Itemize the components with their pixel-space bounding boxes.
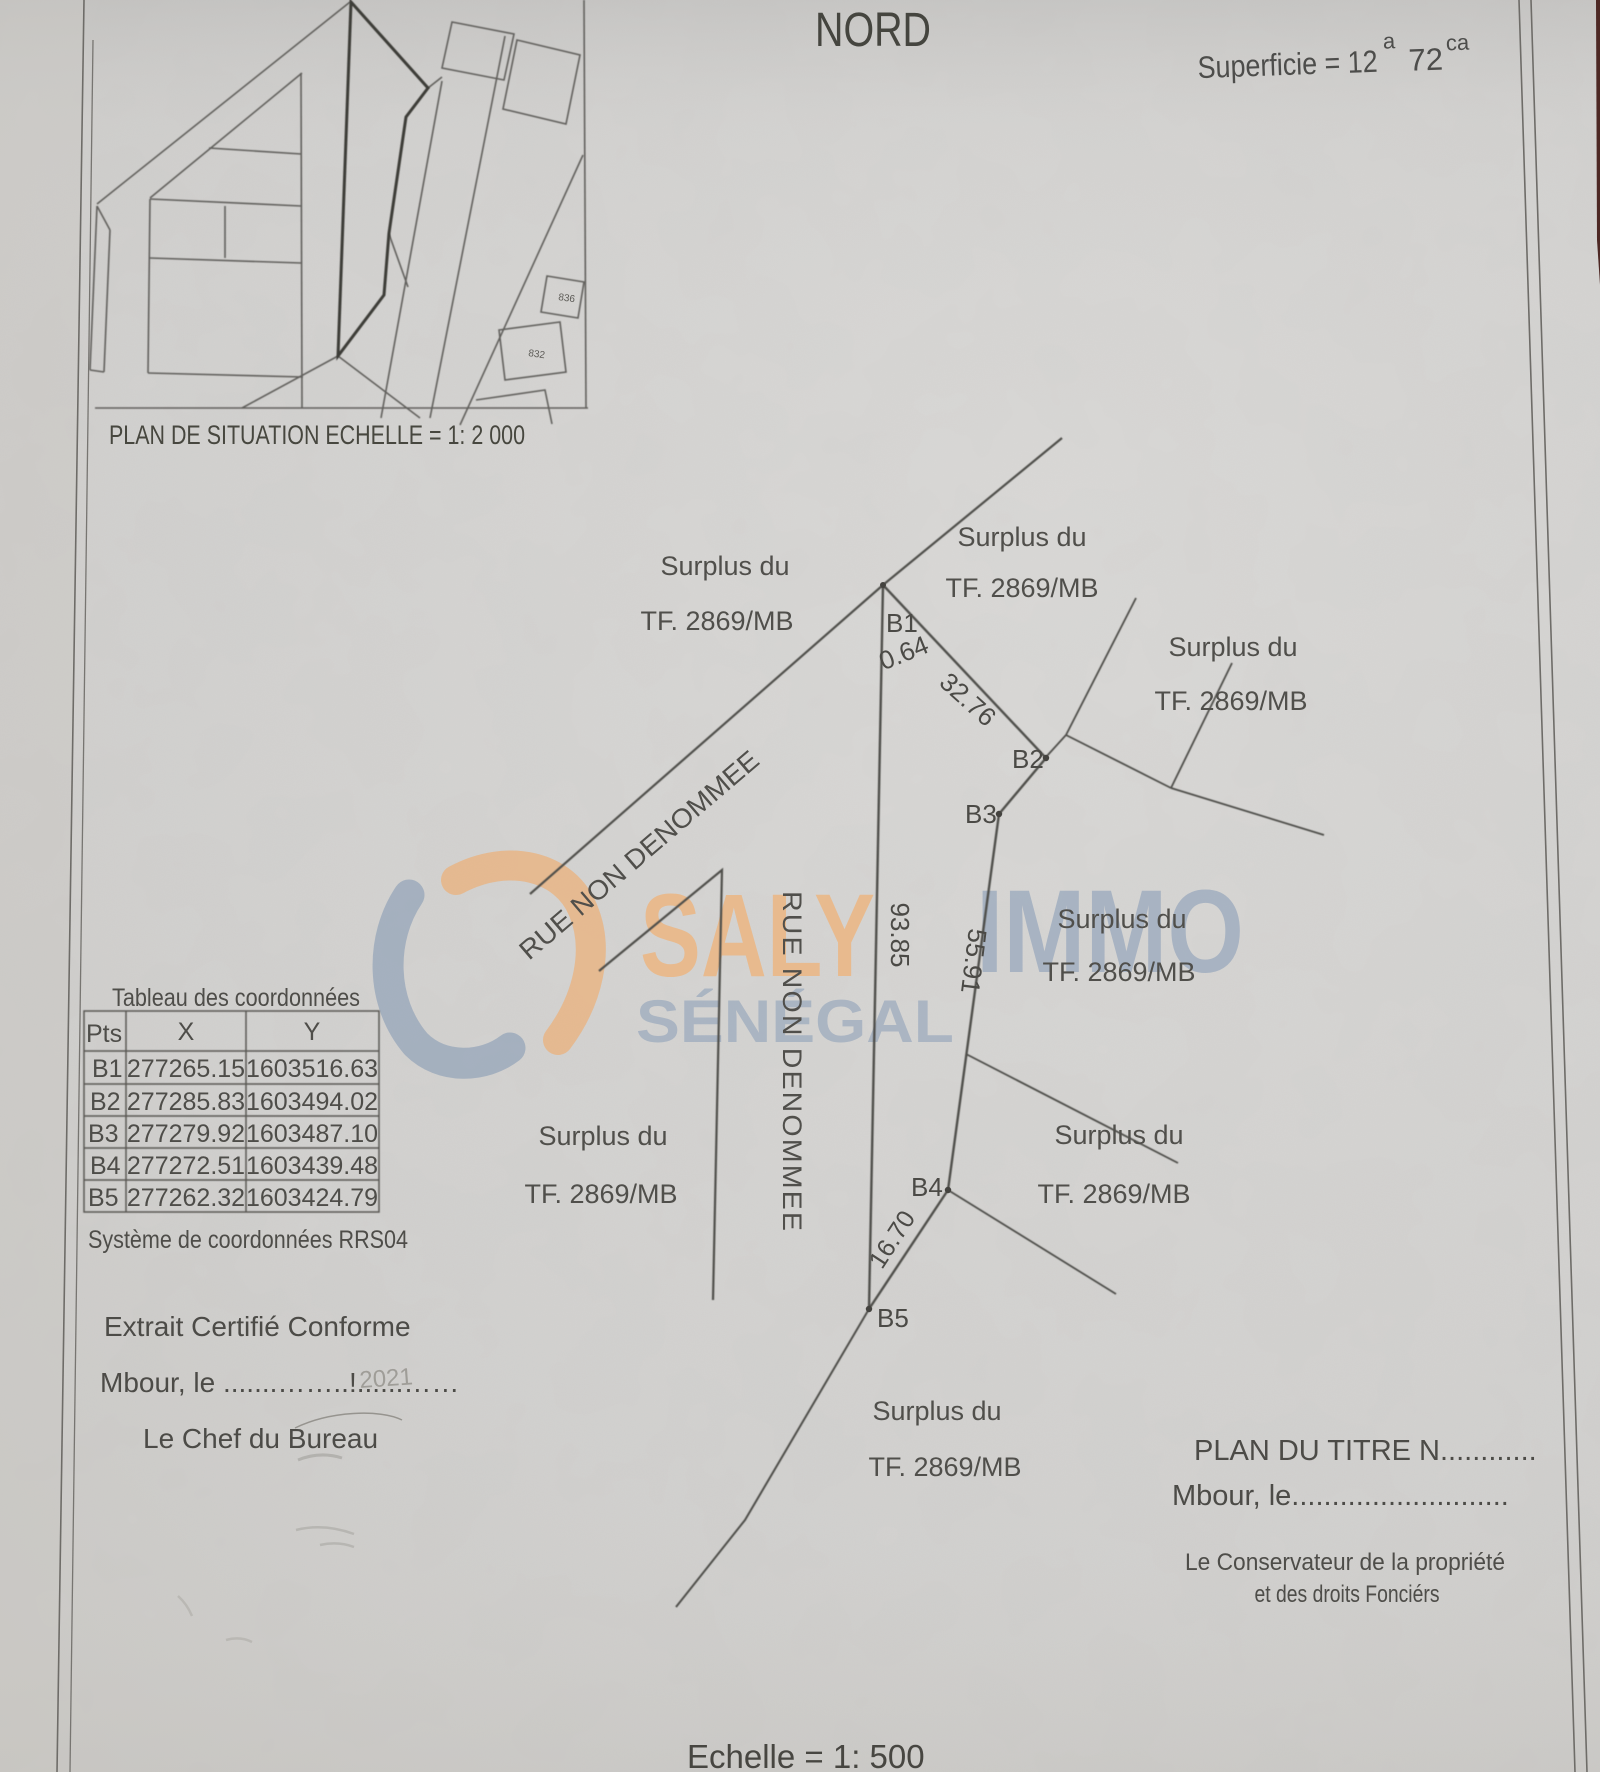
svg-text:B3: B3 [88,1120,119,1148]
svg-text:Surplus du: Surplus du [1168,632,1297,662]
svg-text:Superficie = 12: Superficie = 12 [1197,44,1378,85]
svg-text:277285.83: 277285.83 [127,1088,245,1116]
svg-text:Surplus du: Surplus du [1054,1120,1183,1150]
svg-text:Surplus du: Surplus du [538,1121,667,1151]
svg-text:TF. 2869/MB: TF. 2869/MB [524,1179,677,1209]
svg-text:Echelle = 1: 500: Echelle = 1: 500 [687,1738,925,1772]
svg-text:SALY: SALY [640,870,875,1002]
svg-text:NORD: NORD [815,4,931,57]
svg-text:93.85: 93.85 [885,902,915,967]
svg-text:1603439.48: 1603439.48 [246,1152,378,1180]
svg-text:1603424.79: 1603424.79 [246,1184,378,1212]
svg-text:Surplus du: Surplus du [957,522,1086,552]
svg-text:TF. 2869/MB: TF. 2869/MB [868,1452,1021,1482]
svg-text:Extrait Certifié Conforme: Extrait Certifié Conforme [104,1311,411,1342]
svg-text:1603494.02: 1603494.02 [246,1088,378,1116]
svg-text:et des droits Fonciérs: et des droits Fonciérs [1255,1581,1440,1608]
svg-text:Tableau des coordonnées: Tableau des coordonnées [112,984,360,1012]
svg-text:277265.15: 277265.15 [127,1055,245,1083]
svg-text:ca: ca [1445,30,1470,56]
svg-text:1603516.63: 1603516.63 [246,1055,378,1083]
svg-text:277279.92: 277279.92 [127,1120,245,1148]
svg-text:B4: B4 [90,1152,121,1180]
svg-text:Y: Y [304,1018,321,1046]
svg-text:a: a [1382,28,1396,53]
svg-text:Le Conservateur de la propriét: Le Conservateur de la propriété [1185,1549,1505,1576]
svg-text:2021: 2021 [359,1363,414,1394]
svg-text:B5: B5 [877,1303,909,1333]
svg-text:RUE NON DENOMMEE: RUE NON DENOMMEE [777,891,807,1233]
svg-text:1603487.10: 1603487.10 [246,1120,378,1148]
svg-text:B4: B4 [911,1172,943,1202]
svg-text:Surplus du: Surplus du [1057,904,1186,934]
svg-text:B1: B1 [92,1055,123,1083]
svg-text:TF. 2869/MB: TF. 2869/MB [1154,686,1307,716]
svg-text:Mbour, le.....................: Mbour, le........................... [1172,1480,1509,1512]
svg-text:TF. 2869/MB: TF. 2869/MB [945,573,1098,603]
svg-text:Surplus du: Surplus du [872,1396,1001,1426]
svg-text:Pts: Pts [86,1020,122,1048]
svg-text:Surplus du: Surplus du [660,551,789,581]
svg-text:277262.32: 277262.32 [127,1184,245,1212]
svg-text:TF. 2869/MB: TF. 2869/MB [1037,1179,1190,1209]
svg-text:72: 72 [1408,42,1444,78]
svg-text:TF. 2869/MB: TF. 2869/MB [1042,957,1195,987]
svg-text:B2: B2 [1012,744,1044,774]
svg-text:Le Chef du Bureau: Le Chef du Bureau [143,1423,378,1454]
svg-text:PLAN DU TITRE N............: PLAN DU TITRE N............ [1194,1435,1537,1467]
svg-text:B3: B3 [965,799,997,829]
svg-text:B5: B5 [88,1184,119,1212]
svg-text:TF. 2869/MB: TF. 2869/MB [640,606,793,636]
svg-text:277272.51: 277272.51 [127,1152,245,1180]
svg-text:B2: B2 [90,1088,121,1116]
svg-text:Système de coordonnées RRS04: Système de coordonnées RRS04 [88,1226,408,1254]
svg-text:PLAN DE SITUATION ECHELLE = 1:: PLAN DE SITUATION ECHELLE = 1: 2 000 [109,420,525,450]
svg-text:X: X [178,1018,195,1046]
